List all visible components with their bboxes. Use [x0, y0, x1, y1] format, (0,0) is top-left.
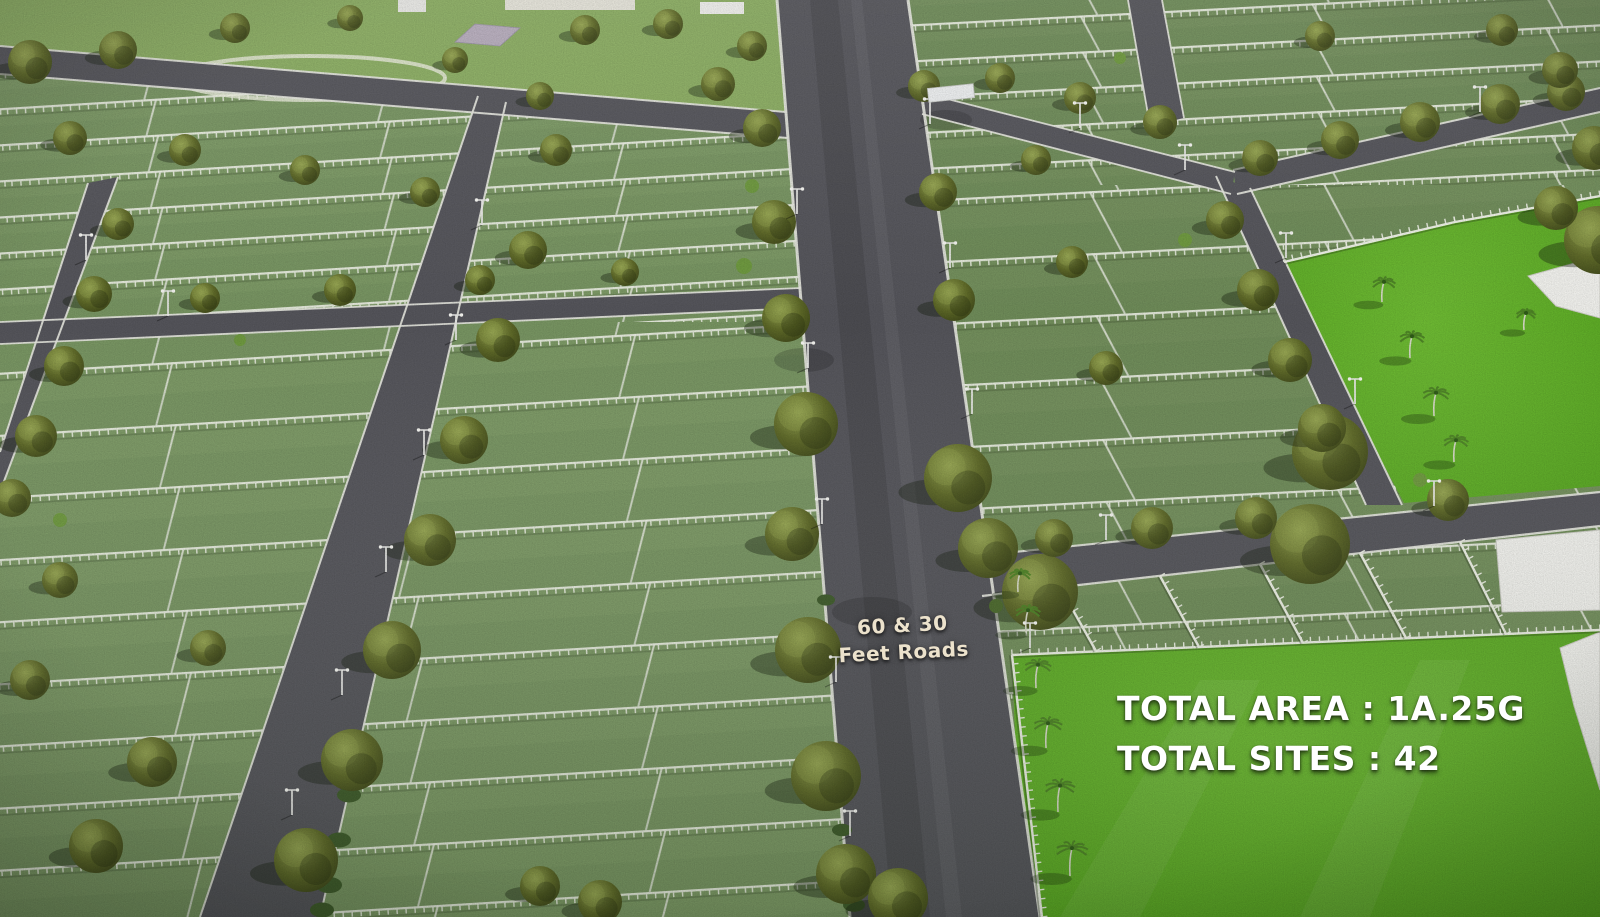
total-area-text: TOTAL AREA : 1A.25G: [1117, 684, 1525, 734]
road-size-label: 60 & 30 Feet Roads: [836, 609, 969, 670]
site-stats-overlay: TOTAL AREA : 1A.25G TOTAL SITES : 42: [1117, 684, 1525, 784]
total-sites-text: TOTAL SITES : 42: [1117, 734, 1525, 784]
layout-aerial-render: 60 & 30 Feet Roads TOTAL AREA : 1A.25G T…: [0, 0, 1600, 917]
